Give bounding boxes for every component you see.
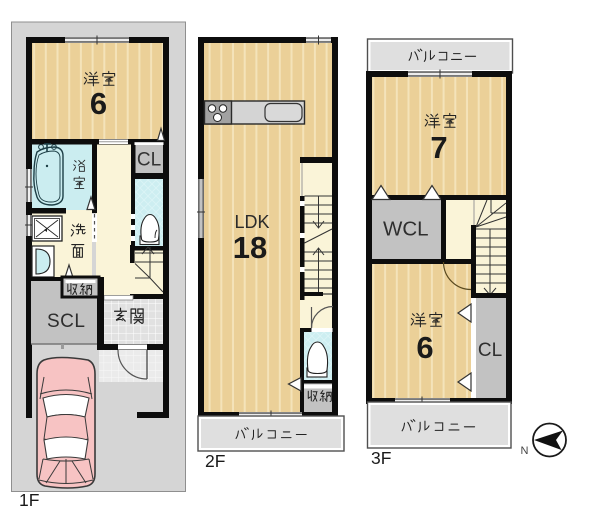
svg-text:N: N	[521, 445, 529, 457]
svg-text:CL: CL	[137, 150, 161, 171]
svg-text:LDK: LDK	[234, 212, 269, 232]
svg-text:18: 18	[233, 230, 267, 265]
svg-text:7: 7	[430, 130, 447, 165]
svg-text:6: 6	[416, 330, 433, 365]
svg-text:2F: 2F	[205, 451, 225, 471]
svg-text:1F: 1F	[19, 490, 39, 510]
svg-text:6: 6	[90, 86, 107, 121]
svg-text:SCL: SCL	[47, 311, 85, 332]
svg-text:CL: CL	[478, 340, 502, 361]
svg-text:WCL: WCL	[383, 218, 429, 241]
svg-text:3F: 3F	[371, 448, 391, 468]
